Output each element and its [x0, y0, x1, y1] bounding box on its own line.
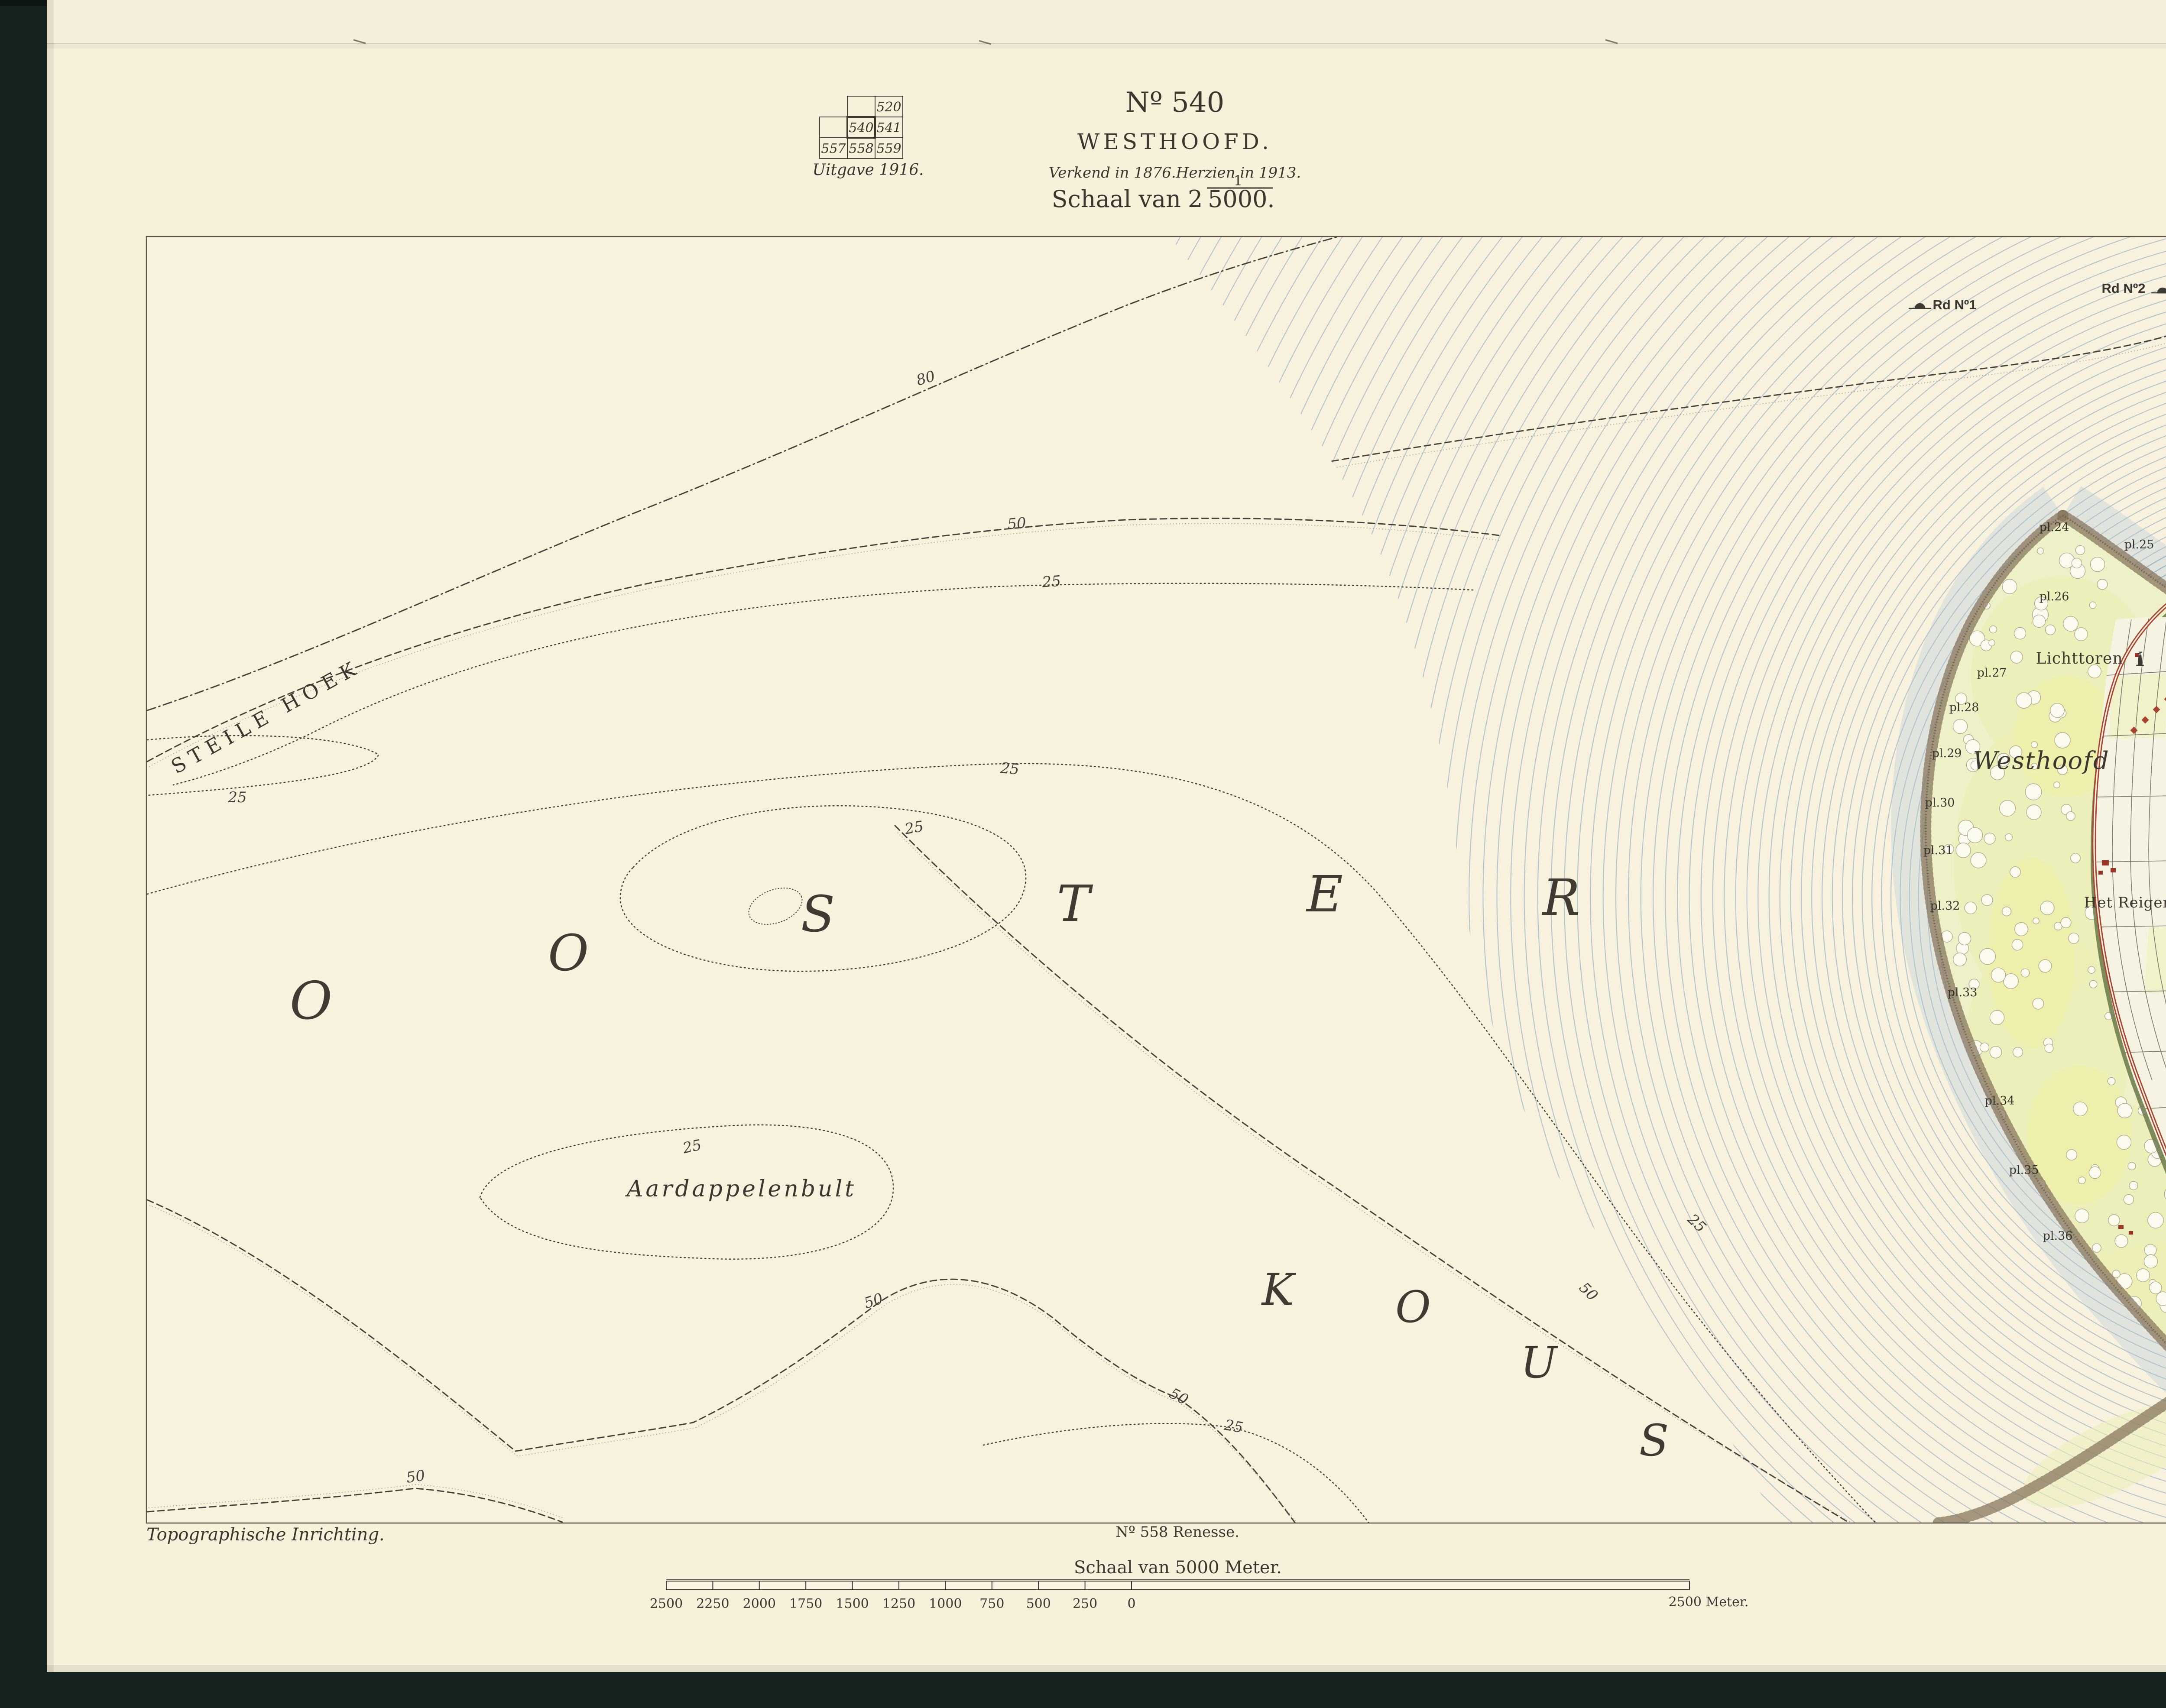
dune-hillock [1971, 852, 1986, 868]
publisher-imprint: Topographische Inrichting. [146, 1525, 385, 1545]
dune-hillock [2040, 901, 2054, 915]
contour-label: 25 [903, 818, 925, 838]
dune-hillock [2021, 969, 2030, 977]
index-cell-number: 558 [849, 141, 873, 156]
dune-hillock [2150, 1282, 2162, 1294]
dune-hillock [2137, 1269, 2150, 1282]
dune-hillock [2071, 853, 2080, 863]
dune-hillock [2144, 1254, 2157, 1268]
page-fold-shadow [47, 44, 2166, 49]
dune-hillock [1958, 932, 1971, 945]
contour-label: 50 [1007, 514, 1027, 533]
dune-hillock [2015, 923, 2028, 936]
scalebar-tick-label: 250 [1073, 1596, 1097, 1611]
dune-hillock [2148, 1212, 2163, 1228]
scalebar-tick-label: 2250 [696, 1596, 729, 1611]
dune-hillock [2010, 651, 2023, 663]
dune-hillock [2088, 966, 2095, 973]
pole-label: pl.35 [2009, 1164, 2039, 1177]
scalebar-tick-label: 750 [979, 1596, 1004, 1611]
index-cell-number: 557 [821, 141, 846, 156]
dune-hillock [2128, 1162, 2136, 1170]
scalebar-tick-label: 2500 [650, 1596, 683, 1611]
pole-label: pl.32 [1930, 899, 1960, 913]
dune-hillock [2066, 1150, 2077, 1160]
dune-hillock [2027, 805, 2041, 820]
scalebar-tick-label: 1500 [836, 1596, 869, 1611]
pole-label: pl.25 [2124, 538, 2154, 551]
dune-hillock [1990, 1046, 2001, 1058]
dune-hillock [2063, 616, 2078, 631]
pole-label: pl.26 [2040, 590, 2069, 603]
dune-hillock [1953, 953, 1967, 966]
dune-hillock [2089, 1167, 2101, 1178]
pole-label: pl.28 [1949, 701, 1979, 714]
pole-label: pl.31 [1923, 844, 1953, 857]
scalebar-tick-label: 2000 [743, 1596, 776, 1611]
dune-hillock [2012, 939, 2023, 950]
survey-note: Verkend in 1876.Herzien in 1913. [1049, 164, 1301, 181]
paper-left-shadow [47, 0, 54, 1672]
dune-hillock [2078, 1177, 2085, 1184]
dune-hillock [2115, 1235, 2128, 1248]
dune-hillock [2055, 732, 2070, 748]
dune-hillock [2072, 558, 2082, 568]
scale-label: Schaal van [1052, 185, 1181, 213]
scale-numerator: 1 [1234, 172, 1242, 189]
dune-hillock [2066, 812, 2075, 821]
dune-hillock [2000, 801, 2016, 817]
dune-hillock [2061, 917, 2071, 928]
pole-label: pl.33 [1948, 986, 1978, 999]
scalebar-tick-label: 0 [1127, 1596, 1135, 1611]
place-label: Aardappelenbult [625, 1176, 856, 1202]
beacon-label: Rd Nº2 [2102, 281, 2146, 296]
sea-letter: E [1306, 865, 1343, 924]
sheet-title: WESTHOOFD. [1077, 129, 1272, 154]
scalebar-end-label: 2500 Meter. [1669, 1595, 1749, 1610]
sea-letter: O [1395, 1282, 1431, 1332]
sea-letter: K [1261, 1264, 1297, 1315]
dune-hillock [2033, 998, 2044, 1009]
dune-hillock [2002, 907, 2011, 916]
scalebar-tick-label: 1250 [882, 1596, 915, 1611]
index-cell-number: 520 [876, 100, 901, 115]
dune-hillock [2089, 980, 2097, 988]
index-cell-number: 559 [876, 141, 901, 156]
dune-hillock [2108, 1215, 2120, 1226]
scale-den-tail: 5000. [1208, 185, 1275, 213]
contour-label: 25 [1222, 1416, 1245, 1437]
sheet-number: Nº 540 [1125, 87, 1225, 119]
dune-hillock [1956, 843, 1971, 858]
dune-hillock [2050, 703, 2065, 718]
dune-hillock [2092, 1244, 2101, 1252]
dune-hillock [2033, 615, 2046, 628]
dune-hillock [2124, 1195, 2134, 1205]
dune-hillock [1990, 1010, 2004, 1024]
dune-hillock [2073, 1102, 2088, 1116]
dune-hillock [1984, 833, 1995, 844]
dune-hillock [2117, 1103, 2132, 1118]
dune-hillock [2037, 548, 2044, 554]
adjacent-page-edge [47, 0, 2166, 43]
place-label: Het Reigersnest [2084, 894, 2166, 911]
dune-hillock [1953, 719, 1967, 733]
dune-hillock [2045, 625, 2055, 635]
dune-hillock [2097, 579, 2108, 590]
sea-letter: U [1521, 1337, 1559, 1388]
dune-hillock [2014, 627, 2026, 639]
index-cell-number: 541 [876, 120, 901, 136]
dune-hillock [1980, 1043, 1989, 1052]
contour-label: 50 [405, 1467, 426, 1487]
dune-hillock [2117, 1135, 2131, 1149]
pole-label: pl.27 [1977, 666, 2007, 680]
dune-hillock [2025, 784, 2042, 800]
sea-letter: S [801, 885, 835, 943]
scalebar-bar [666, 1581, 1689, 1590]
dune-hillock [1989, 640, 1995, 646]
dune-hillock [2002, 579, 2017, 594]
pole-label: pl.30 [1925, 796, 1955, 810]
dune-hillock [1967, 827, 1982, 843]
dune-hillock [2075, 1209, 2089, 1223]
contour-label: 25 [999, 759, 1020, 778]
contour-label: 25 [1041, 573, 1061, 591]
dune-hillock [2069, 933, 2079, 943]
scanned-map-page: OOSTERKOUS STEILE HOEKAardappelenbultWes… [0, 0, 2166, 1708]
dune-hillock [2129, 1181, 2138, 1190]
place-label: Lichttoren [2036, 650, 2123, 668]
dune-hillock [2054, 782, 2060, 788]
dune-hillock [2039, 959, 2052, 972]
map-body: OOSTERKOUS STEILE HOEKAardappelenbultWes… [146, 0, 2166, 1708]
dune-hillock [2108, 1077, 2115, 1085]
sea-letter: T [1057, 875, 1093, 933]
dune-hillock [1980, 949, 1996, 965]
dune-hillock [1981, 895, 1993, 906]
beacon-label: Rd Nº1 [1933, 297, 1977, 312]
dune-hillock [2090, 557, 2104, 571]
dune-hillock [2013, 1047, 2023, 1057]
pole-label: pl.24 [2040, 521, 2069, 534]
dune-hillock [2033, 918, 2039, 924]
paper-bottom-shadow [47, 1665, 2166, 1672]
dune-hillock [1991, 968, 2005, 982]
pole-label: pl.29 [1932, 747, 1962, 760]
dune-hillock [2005, 834, 2013, 841]
place-label: Westhoofd [1973, 747, 2109, 775]
dune-hillock [2075, 628, 2088, 641]
dune-hillock [2075, 545, 2085, 554]
contour-label: 25 [227, 789, 246, 806]
dune-hillock [2144, 1244, 2156, 1256]
sea-letter: O [290, 971, 332, 1031]
dune-hillock [2010, 867, 2021, 878]
sea-letter: S [1639, 1415, 1669, 1466]
dune-hillock [1990, 626, 1997, 633]
pole-label: pl.36 [2043, 1229, 2073, 1243]
scalebar-tick-label: 500 [1026, 1596, 1051, 1611]
map-paper [146, 237, 2166, 1523]
dune-hillock [1965, 902, 1977, 914]
dune-hillock [2089, 602, 2096, 609]
scalebar-title: Schaal van 5000 Meter. [1074, 1558, 1282, 1578]
bottom-sheet-ref: Nº 558 Renesse. [1115, 1523, 1239, 1541]
scale-den-head: 2 [1188, 185, 1203, 213]
scalebar-tick-label: 1000 [929, 1596, 962, 1611]
dune-hillock [2045, 1044, 2053, 1053]
pole-label: pl.34 [1985, 1094, 2015, 1108]
index-cell-number: 540 [849, 120, 873, 136]
sea-letter: R [1542, 869, 1580, 927]
index-caption: Uitgave 1916. [813, 161, 924, 179]
map-sheet-svg: OOSTERKOUS STEILE HOEKAardappelenbultWes… [0, 0, 2166, 1708]
dune-hillock [2016, 693, 2032, 708]
sea-letter: O [548, 924, 589, 982]
scalebar-tick-label: 1750 [789, 1596, 822, 1611]
